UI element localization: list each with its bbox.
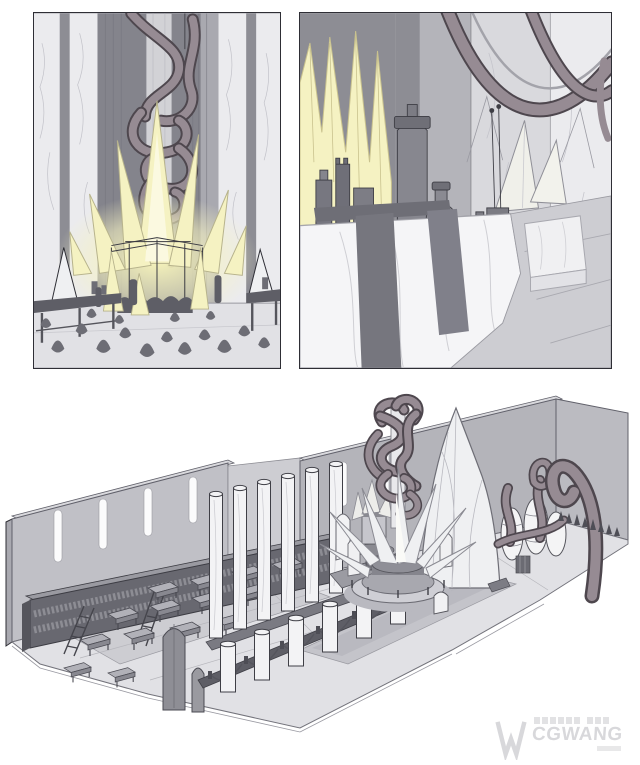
altar-closeup-illustration — [34, 13, 280, 368]
panel-lab-closeup — [299, 12, 612, 369]
cloth-covered-pedestal — [525, 216, 587, 292]
watermark-subtext — [597, 746, 621, 751]
panel-altar-closeup — [33, 12, 281, 369]
watermark-logo-icon — [494, 716, 528, 760]
overview-sketch — [0, 392, 640, 737]
watermark: CGWANG — [494, 714, 636, 762]
watermark-text: CGWANG — [531, 725, 623, 744]
watermark-caption-illegible — [534, 717, 623, 724]
lab-closeup-illustration — [300, 13, 611, 368]
overview-illustration — [0, 392, 640, 737]
concept-art-sheet: CGWANG — [0, 0, 640, 765]
